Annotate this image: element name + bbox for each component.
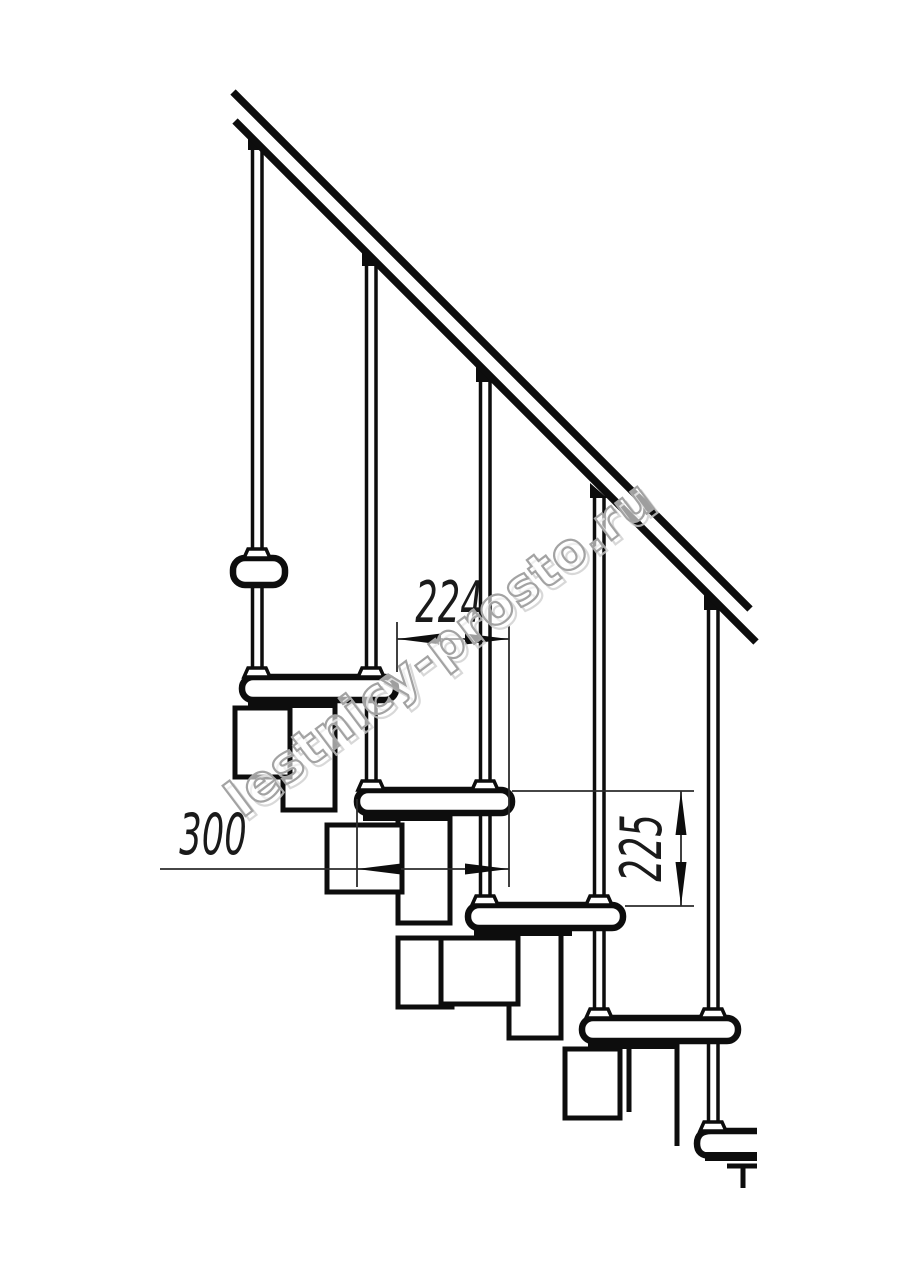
staircase-drawing-page: 224 300 225 lestnicy-prosto.ru lestnicy-… <box>0 0 914 1280</box>
collar <box>700 1009 726 1018</box>
collar <box>586 1009 612 1018</box>
tread-end-view <box>233 558 285 585</box>
collar <box>700 1122 726 1131</box>
collar <box>244 549 270 558</box>
staircase-technical-drawing: 224 300 225 lestnicy-prosto.ru lestnicy-… <box>0 0 914 1280</box>
baluster <box>253 148 263 677</box>
tread <box>582 1018 738 1041</box>
collar <box>358 781 384 790</box>
tread <box>357 790 512 813</box>
collar <box>472 896 498 905</box>
tread <box>468 905 623 928</box>
support-module <box>327 825 402 892</box>
arrowhead <box>676 862 687 906</box>
dimension-225-label: 225 <box>609 814 675 881</box>
baluster <box>595 496 605 1018</box>
handrail-lower-edge <box>235 121 756 642</box>
watermark: lestnicy-prosto.ru lestnicy-prosto.ru <box>214 469 669 833</box>
tread-bracket <box>705 1152 757 1161</box>
baluster <box>709 608 719 1131</box>
tread-bracket <box>474 927 572 936</box>
tread-bracket <box>588 1040 678 1049</box>
arrowhead <box>676 791 687 835</box>
support-module <box>441 938 518 1004</box>
arrowhead <box>465 864 509 875</box>
collar <box>586 896 612 905</box>
support-module <box>565 1049 620 1118</box>
collar <box>244 668 270 677</box>
handrail <box>233 92 756 642</box>
collar <box>472 781 498 790</box>
watermark-text: lestnicy-prosto.ru <box>214 469 665 829</box>
tread-bracket <box>363 812 450 821</box>
